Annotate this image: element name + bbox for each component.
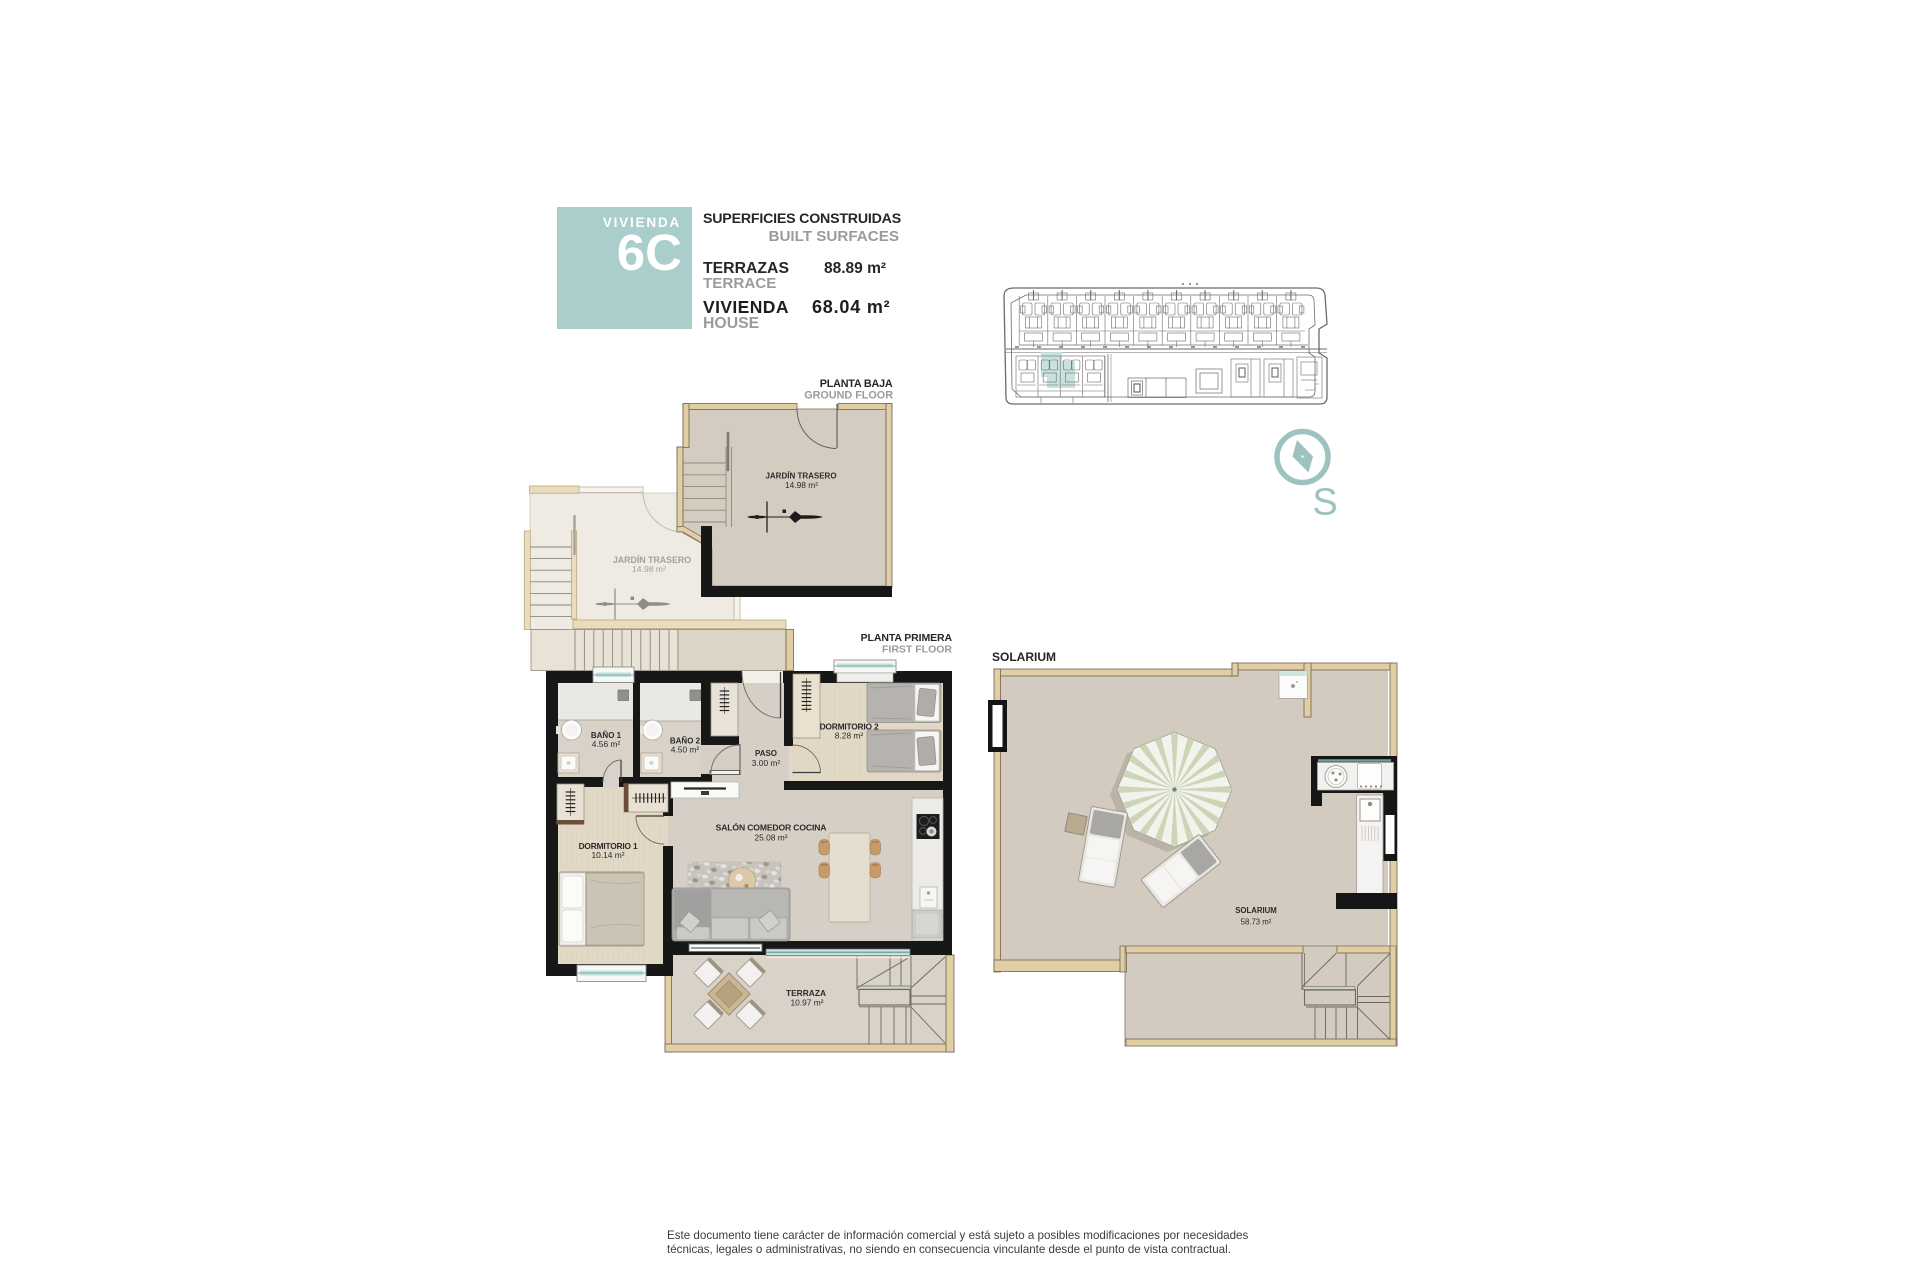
svg-text:técnicas, legales o administra: técnicas, legales o administrativas, no …: [667, 1243, 1231, 1256]
svg-text:TERRACE: TERRACE: [703, 275, 776, 292]
svg-text:PLANTA BAJA: PLANTA BAJA: [820, 378, 893, 390]
svg-text:SOLARIUM: SOLARIUM: [1235, 906, 1277, 915]
svg-text:10.97 m²: 10.97 m²: [790, 998, 823, 1008]
svg-text:HOUSE: HOUSE: [703, 315, 759, 332]
svg-text:3.00 m²: 3.00 m²: [752, 758, 781, 768]
svg-text:4.56 m²: 4.56 m²: [592, 739, 621, 749]
svg-text:BUILT SURFACES: BUILT SURFACES: [768, 228, 899, 245]
svg-text:SALÓN COMEDOR COCINA: SALÓN COMEDOR COCINA: [716, 822, 827, 833]
svg-text:6C: 6C: [617, 224, 682, 281]
svg-text:FIRST FLOOR: FIRST FLOOR: [882, 643, 952, 655]
svg-text:14.98 m²: 14.98 m²: [785, 480, 818, 490]
svg-text:PASO: PASO: [755, 749, 777, 758]
svg-text:PLANTA PRIMERA: PLANTA PRIMERA: [861, 632, 953, 644]
svg-text:TERRAZA: TERRAZA: [786, 988, 826, 998]
svg-text:4.50 m²: 4.50 m²: [671, 745, 700, 755]
svg-text:VIVIENDA: VIVIENDA: [703, 297, 789, 317]
svg-text:Este documento tiene carácter: Este documento tiene carácter de informa…: [667, 1229, 1248, 1242]
svg-text:S: S: [1312, 482, 1337, 524]
svg-text:SUPERFICIES CONSTRUIDAS: SUPERFICIES CONSTRUIDAS: [703, 211, 901, 227]
svg-text:GROUND FLOOR: GROUND FLOOR: [804, 389, 893, 401]
svg-text:14.98 m²: 14.98 m²: [632, 564, 666, 574]
svg-text:88.89 m²: 88.89 m²: [824, 260, 886, 277]
svg-text:SOLARIUM: SOLARIUM: [992, 650, 1056, 664]
svg-text:68.04 m²: 68.04 m²: [812, 297, 890, 317]
svg-text:8.28 m²: 8.28 m²: [835, 731, 864, 741]
svg-text:10.14 m²: 10.14 m²: [591, 850, 624, 860]
svg-text:58.73 m²: 58.73 m²: [1241, 918, 1272, 927]
svg-text:25.08 m²: 25.08 m²: [754, 833, 787, 843]
